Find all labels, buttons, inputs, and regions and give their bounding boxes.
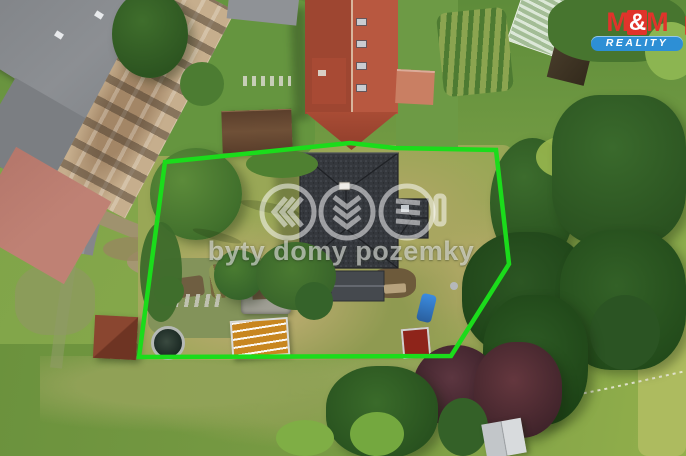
aerial-property-photo: byty domy pozemky M&M REALITY	[0, 0, 686, 456]
plot-boundary-overlay	[0, 0, 686, 456]
plot-boundary-polygon	[139, 143, 509, 357]
